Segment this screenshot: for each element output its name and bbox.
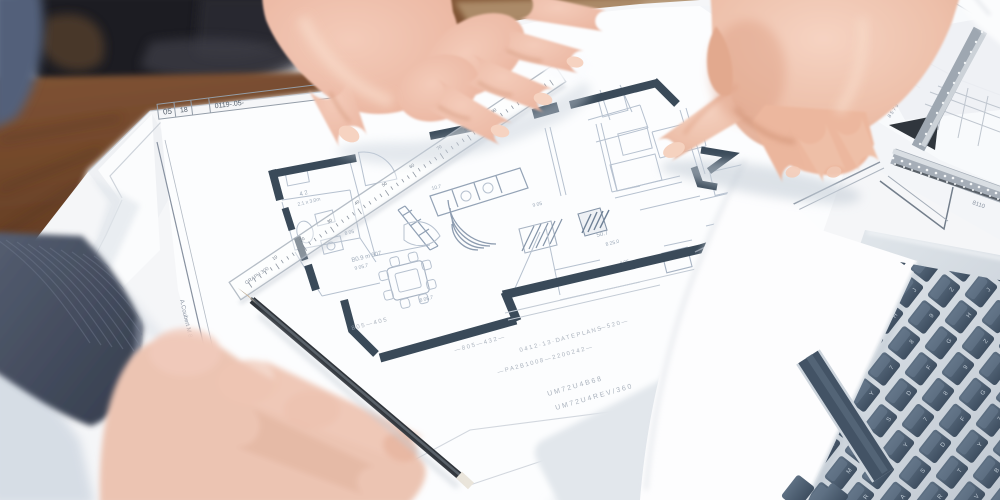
svg-text:05: 05 [162, 107, 172, 117]
svg-text:18: 18 [180, 107, 189, 115]
